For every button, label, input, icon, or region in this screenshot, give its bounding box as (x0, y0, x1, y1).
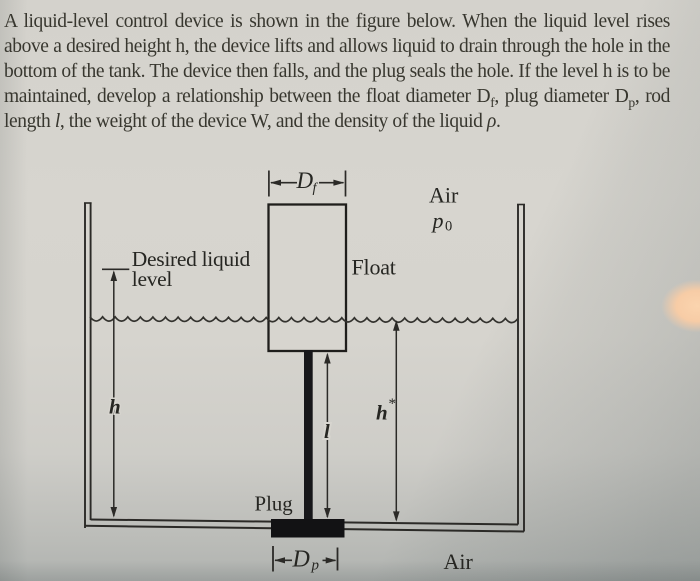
svg-text:f: f (313, 181, 319, 196)
svg-text:Float: Float (352, 255, 396, 280)
svg-text:h: h (109, 395, 121, 419)
svg-text:Plug: Plug (255, 493, 293, 516)
svg-text:p: p (431, 208, 444, 233)
svg-text:Air: Air (429, 183, 459, 208)
svg-text:0: 0 (445, 219, 452, 235)
svg-text:p: p (311, 558, 320, 574)
svg-text:level: level (132, 267, 173, 291)
svg-text:Air: Air (444, 549, 474, 574)
svg-text:l: l (324, 421, 330, 443)
svg-text:h: h (376, 401, 388, 425)
svg-text:D: D (296, 168, 314, 193)
svg-text:D: D (292, 547, 310, 573)
svg-text:*: * (389, 396, 397, 412)
